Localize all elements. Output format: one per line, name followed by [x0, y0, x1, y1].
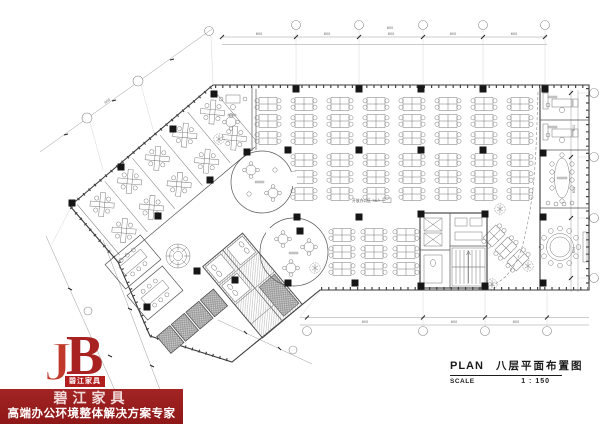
circular-lounge-b: [260, 218, 328, 286]
open-office-row-1: [255, 98, 533, 145]
reception-office: [214, 95, 247, 144]
svg-text:600: 600: [513, 320, 519, 324]
svg-text:600: 600: [104, 98, 112, 105]
floor-plan-page: 600 600 600 600 600 600 600 600 600 600 …: [0, 0, 600, 424]
scale-label: SCALE: [450, 378, 475, 385]
plants: [487, 204, 533, 289]
svg-text:600: 600: [256, 32, 262, 36]
company-logo: B J 碧江家具: [40, 334, 190, 392]
spiral-feature: [166, 244, 190, 268]
round-table-room: [539, 201, 587, 268]
scale-value: 1 : 150: [521, 378, 550, 385]
meeting-room-a: [105, 235, 161, 289]
company-name: 碧江家具: [0, 390, 183, 407]
plan-label: PLAN: [450, 360, 484, 372]
company-tagline: 高端办公环境整体解决方案专家: [0, 407, 183, 421]
title-divider: [450, 375, 562, 376]
title-block: PLAN 八层平面布置图 SCALE 1 : 150: [450, 358, 586, 385]
svg-text:600: 600: [451, 320, 457, 324]
svg-text:600: 600: [450, 32, 456, 36]
svg-text:600: 600: [362, 320, 368, 324]
open-office-row-3: [329, 222, 532, 275]
elevator-core: [420, 213, 487, 288]
svg-text:600: 600: [388, 32, 394, 36]
logo-box-label: 碧江家具: [65, 376, 105, 387]
stairs: [452, 248, 485, 286]
brand-banner: 碧江家具 高端办公环境整体解决方案专家: [0, 389, 183, 424]
meeting-room-b: [127, 266, 183, 320]
svg-text:600: 600: [387, 26, 393, 30]
right-offices: [539, 93, 587, 268]
conference-room: [550, 153, 574, 203]
circular-lounge-a: [231, 151, 297, 213]
open-office-row-2: [291, 154, 533, 201]
svg-text:600: 600: [324, 32, 330, 36]
plan-title: 八层平面布置图: [496, 358, 584, 373]
svg-text:600: 600: [572, 125, 576, 131]
open-office-label: 开放办公区 36人: [352, 198, 381, 203]
svg-text:600: 600: [511, 32, 517, 36]
